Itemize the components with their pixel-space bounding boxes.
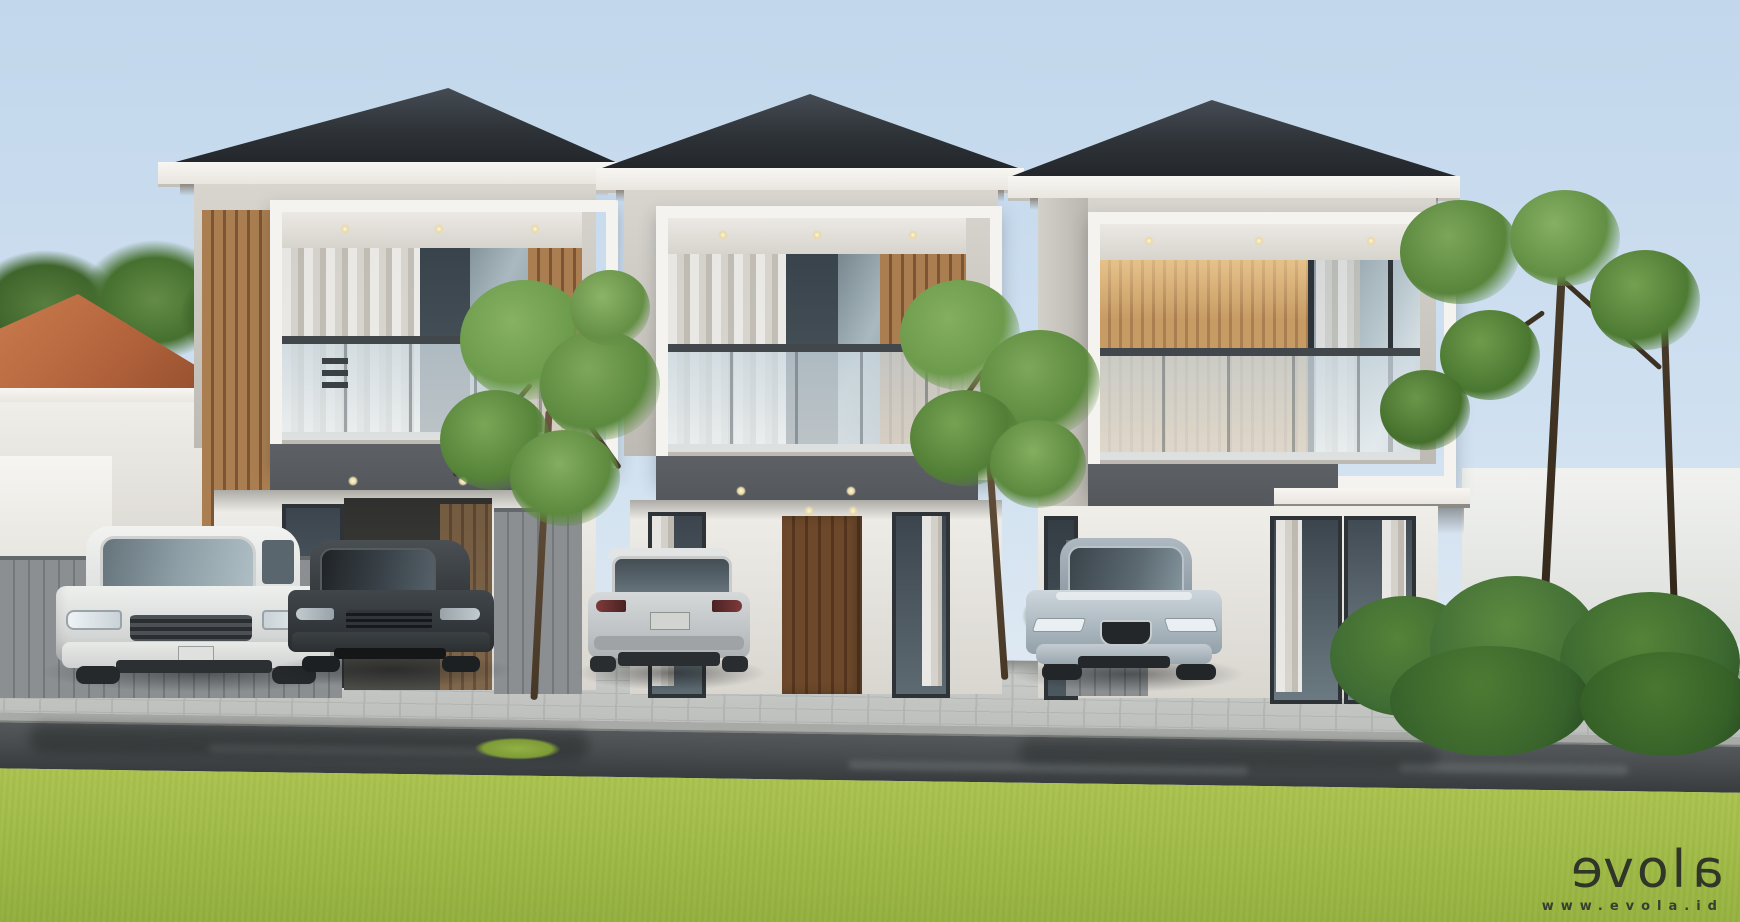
suv2-wheel-left bbox=[302, 656, 340, 672]
shrub bbox=[1390, 646, 1590, 756]
lawn-texture bbox=[0, 768, 1740, 922]
shrub bbox=[1580, 652, 1740, 756]
watermark-logo-first-letter: e bbox=[1568, 844, 1603, 896]
car-silver-hatchback bbox=[588, 548, 750, 678]
sedan-grille bbox=[1100, 620, 1152, 646]
downlight bbox=[1366, 236, 1376, 246]
tree-foliage bbox=[1400, 200, 1520, 304]
house1-roof bbox=[168, 88, 620, 164]
sedan-wheel-right bbox=[1176, 664, 1216, 680]
downlight bbox=[908, 230, 918, 240]
tree-foliage bbox=[540, 330, 660, 440]
downlight bbox=[846, 486, 856, 496]
sedan-wheel-left bbox=[1042, 664, 1082, 680]
house2-roof bbox=[602, 94, 1018, 168]
car-dark-suv bbox=[288, 540, 494, 676]
suv-wheel-left bbox=[76, 666, 120, 684]
tree-foliage bbox=[570, 270, 650, 346]
downlight bbox=[736, 486, 746, 496]
suv2-windshield bbox=[320, 548, 436, 596]
suv2-headlight-left bbox=[296, 608, 334, 620]
watermark-url: www.evola.id bbox=[1542, 899, 1724, 914]
sedan-headlight-left bbox=[1032, 618, 1087, 632]
sedan-hood-highlight bbox=[1056, 592, 1192, 600]
tree-foliage bbox=[990, 420, 1086, 508]
watermark-logo-mid: vol bbox=[1603, 840, 1689, 900]
downlight bbox=[530, 224, 540, 234]
tree-foliage bbox=[1590, 250, 1700, 350]
downlight bbox=[340, 224, 350, 234]
sedan-intake bbox=[1078, 656, 1170, 668]
tree-foliage bbox=[1380, 370, 1470, 450]
tree-foliage bbox=[510, 430, 620, 526]
suv2-grille bbox=[346, 610, 432, 630]
architectural-rendering: evola www.evola.id bbox=[0, 0, 1740, 922]
watermark-logo: evola bbox=[1542, 844, 1724, 896]
hatch-wheel-right bbox=[722, 656, 748, 672]
hatch-taillight-right bbox=[712, 600, 742, 612]
house1-vent-detail bbox=[322, 358, 348, 388]
suv2-wheel-right bbox=[442, 656, 480, 672]
porch-downlight bbox=[848, 506, 858, 516]
downlight bbox=[1144, 236, 1154, 246]
watermark-logo-last-letter: a bbox=[1689, 844, 1724, 896]
car-silver-sedan bbox=[1026, 538, 1222, 684]
suv-plate bbox=[178, 646, 214, 661]
porch-downlight bbox=[804, 506, 814, 516]
hatch-bumper bbox=[594, 636, 744, 650]
hatch-wheel-left bbox=[590, 656, 616, 672]
sedan-headlight-right bbox=[1164, 618, 1219, 632]
downlight bbox=[434, 224, 444, 234]
downlight bbox=[718, 230, 728, 240]
hatch-diffuser bbox=[618, 652, 720, 666]
hatch-plate bbox=[650, 612, 690, 630]
house2-front-door bbox=[782, 516, 862, 694]
lawn bbox=[0, 768, 1740, 922]
suv-grille bbox=[130, 612, 252, 641]
suv2-headlight-right bbox=[440, 608, 480, 620]
downlight bbox=[812, 230, 822, 240]
hatch-taillight-left bbox=[596, 600, 626, 612]
suv-headlight-left bbox=[66, 610, 122, 630]
house3-roof bbox=[1012, 100, 1456, 176]
house3-window-curtain bbox=[1276, 520, 1302, 692]
watermark: evola www.evola.id bbox=[1542, 844, 1724, 914]
suv2-intake bbox=[334, 648, 446, 659]
shrub-hedge-right bbox=[1330, 556, 1740, 746]
downlight bbox=[1254, 236, 1264, 246]
house3-wood-glow bbox=[1100, 260, 1312, 320]
house3-balcony-mullions bbox=[1100, 356, 1420, 452]
suv-intake bbox=[116, 660, 272, 673]
downlight bbox=[348, 476, 358, 486]
